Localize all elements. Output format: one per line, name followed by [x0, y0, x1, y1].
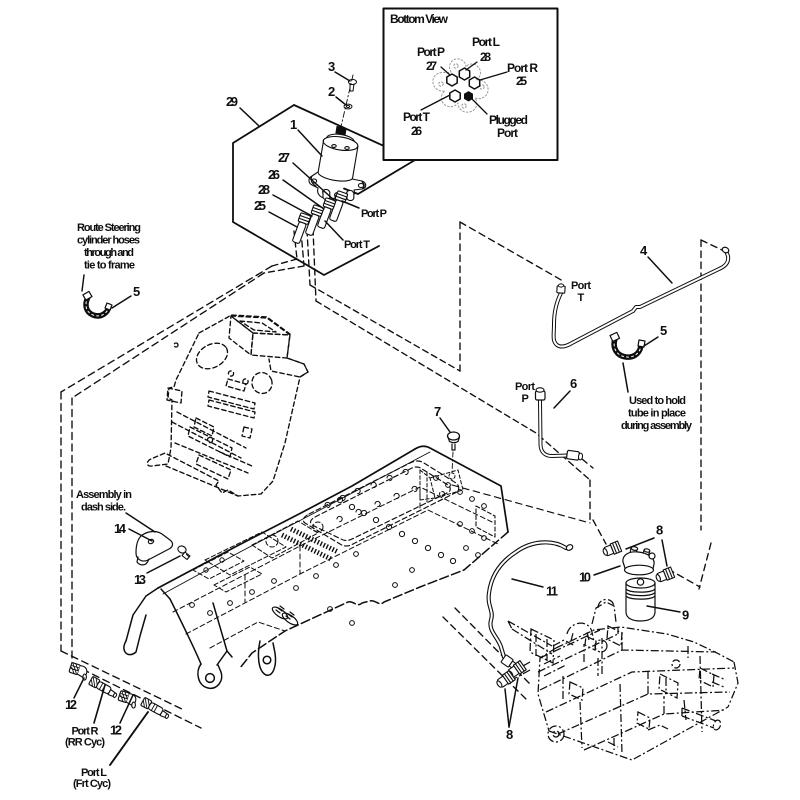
svg-text:Port: Port	[515, 381, 535, 393]
svg-text:through and: through and	[84, 247, 134, 259]
svg-text:26: 26	[268, 167, 280, 182]
svg-text:Bottom View: Bottom View	[390, 12, 449, 26]
svg-text:Port P: Port P	[417, 45, 445, 59]
svg-text:Port: Port	[497, 126, 518, 140]
svg-text:Plugged: Plugged	[489, 113, 528, 127]
svg-text:Port L: Port L	[472, 35, 500, 49]
svg-text:8: 8	[656, 523, 663, 538]
svg-text:Port R: Port R	[507, 61, 538, 75]
svg-text:P: P	[522, 393, 529, 405]
svg-text:14: 14	[114, 521, 127, 536]
svg-text:Port: Port	[571, 280, 591, 292]
svg-text:Assembly in: Assembly in	[76, 489, 132, 501]
svg-text:10: 10	[579, 570, 591, 585]
svg-text:12: 12	[65, 697, 77, 712]
svg-text:tube in place: tube in place	[628, 408, 686, 420]
svg-text:11: 11	[546, 584, 558, 599]
svg-text:Port T: Port T	[344, 239, 370, 251]
svg-text:13: 13	[134, 572, 146, 587]
svg-text:29: 29	[226, 94, 238, 109]
svg-text:(Frt Cyc): (Frt Cyc)	[73, 778, 111, 790]
svg-text:7: 7	[434, 404, 441, 419]
svg-text:27: 27	[278, 150, 290, 165]
svg-text:2: 2	[328, 84, 335, 99]
svg-text:9: 9	[682, 608, 689, 623]
svg-text:Port P: Port P	[361, 208, 387, 220]
svg-text:during assembly: during assembly	[621, 420, 693, 432]
svg-text:dash side.: dash side.	[81, 502, 126, 514]
svg-text:12: 12	[110, 723, 122, 738]
svg-text:1: 1	[290, 117, 297, 132]
svg-text:28: 28	[258, 182, 270, 197]
svg-text:5: 5	[660, 323, 667, 338]
svg-text:cylinder hoses: cylinder hoses	[77, 235, 140, 247]
svg-text:26: 26	[411, 124, 422, 138]
svg-text:Port T: Port T	[403, 110, 431, 124]
svg-text:3: 3	[328, 59, 335, 74]
svg-text:8: 8	[506, 727, 513, 742]
svg-text:27: 27	[426, 59, 437, 73]
svg-text:Route Steering: Route Steering	[77, 222, 141, 234]
svg-text:Used to hold: Used to hold	[629, 395, 686, 407]
svg-text:5: 5	[133, 284, 140, 299]
svg-text:25: 25	[254, 198, 266, 213]
svg-text:T: T	[578, 292, 585, 304]
svg-text:25: 25	[516, 74, 527, 88]
svg-text:4: 4	[640, 243, 648, 258]
svg-text:28: 28	[480, 50, 491, 64]
svg-text:6: 6	[570, 376, 577, 391]
svg-text:(RR Cyc): (RR Cyc)	[65, 737, 105, 749]
svg-text:tie to frame: tie to frame	[84, 260, 135, 272]
